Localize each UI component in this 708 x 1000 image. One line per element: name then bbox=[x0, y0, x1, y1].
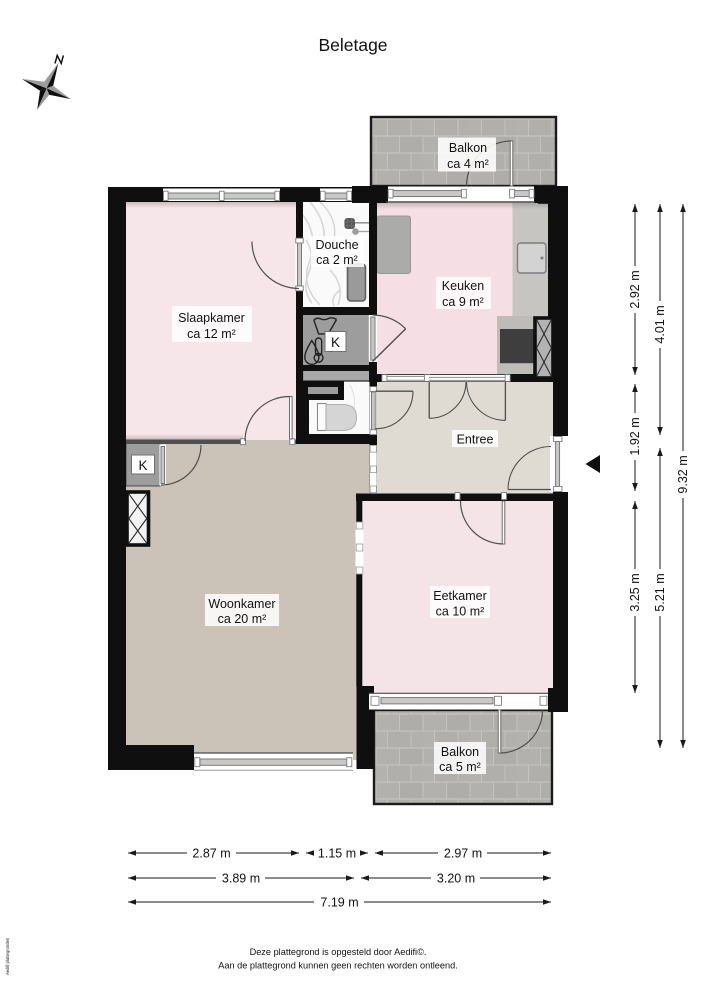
svg-text:Aedifi plattegronden: Aedifi plattegronden bbox=[5, 937, 10, 975]
svg-text:Keuken: Keuken bbox=[442, 279, 484, 293]
svg-text:2.87 m: 2.87 m bbox=[192, 847, 230, 861]
svg-text:K: K bbox=[331, 335, 340, 350]
svg-text:ca 20 m²: ca 20 m² bbox=[218, 612, 267, 626]
svg-text:ca 5 m²: ca 5 m² bbox=[439, 760, 481, 774]
svg-text:Woonkamer: Woonkamer bbox=[208, 597, 275, 611]
svg-text:5.21 m: 5.21 m bbox=[653, 573, 667, 611]
svg-text:9.32 m: 9.32 m bbox=[676, 455, 690, 493]
svg-text:3.89 m: 3.89 m bbox=[222, 872, 260, 886]
svg-text:3.25 m: 3.25 m bbox=[628, 573, 642, 611]
svg-text:Balkon: Balkon bbox=[441, 745, 479, 759]
svg-text:Aan de plattegrond kunnen geen: Aan de plattegrond kunnen geen rechten w… bbox=[218, 961, 458, 971]
svg-text:Beletage: Beletage bbox=[318, 35, 387, 55]
svg-text:Deze plattegrond is opgesteld: Deze plattegrond is opgesteld door Aedif… bbox=[250, 947, 427, 957]
svg-text:Douche: Douche bbox=[315, 238, 358, 252]
svg-text:7.19 m: 7.19 m bbox=[320, 896, 358, 910]
svg-text:K: K bbox=[138, 458, 147, 473]
svg-text:3.20 m: 3.20 m bbox=[437, 872, 475, 886]
svg-text:ca 12 m²: ca 12 m² bbox=[187, 327, 236, 341]
svg-text:ca 9 m²: ca 9 m² bbox=[442, 295, 484, 309]
svg-text:ca 4 m²: ca 4 m² bbox=[447, 157, 489, 171]
svg-text:Balkon: Balkon bbox=[449, 141, 487, 155]
svg-text:2.97 m: 2.97 m bbox=[444, 847, 482, 861]
svg-text:Eetkamer: Eetkamer bbox=[433, 589, 487, 603]
svg-text:2.92 m: 2.92 m bbox=[628, 270, 642, 308]
svg-text:Entree: Entree bbox=[457, 433, 494, 447]
svg-text:ca 10 m²: ca 10 m² bbox=[436, 605, 485, 619]
svg-text:1.92 m: 1.92 m bbox=[628, 417, 642, 455]
svg-text:Slaapkamer: Slaapkamer bbox=[178, 311, 245, 325]
svg-text:1.15 m: 1.15 m bbox=[318, 847, 356, 861]
svg-text:4.01 m: 4.01 m bbox=[653, 305, 667, 343]
svg-text:ca 2 m²: ca 2 m² bbox=[316, 253, 358, 267]
